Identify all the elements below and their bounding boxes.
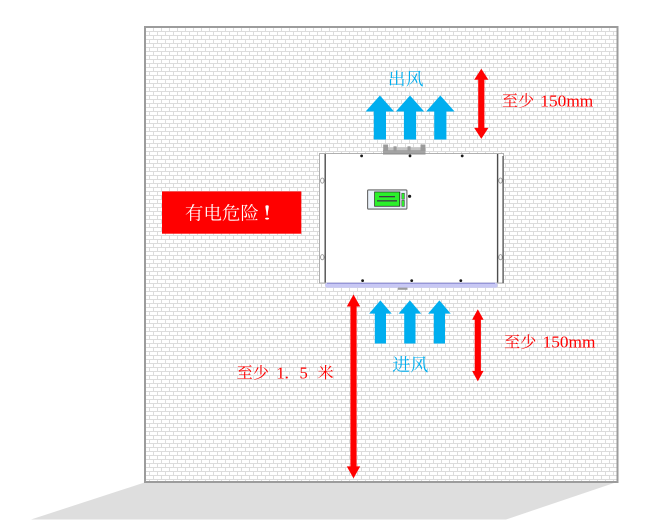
svg-text:150mm: 150mm: [543, 333, 596, 352]
svg-text:1.: 1.: [277, 363, 289, 382]
svg-text:150mm: 150mm: [540, 91, 593, 110]
svg-text:5: 5: [300, 363, 308, 382]
